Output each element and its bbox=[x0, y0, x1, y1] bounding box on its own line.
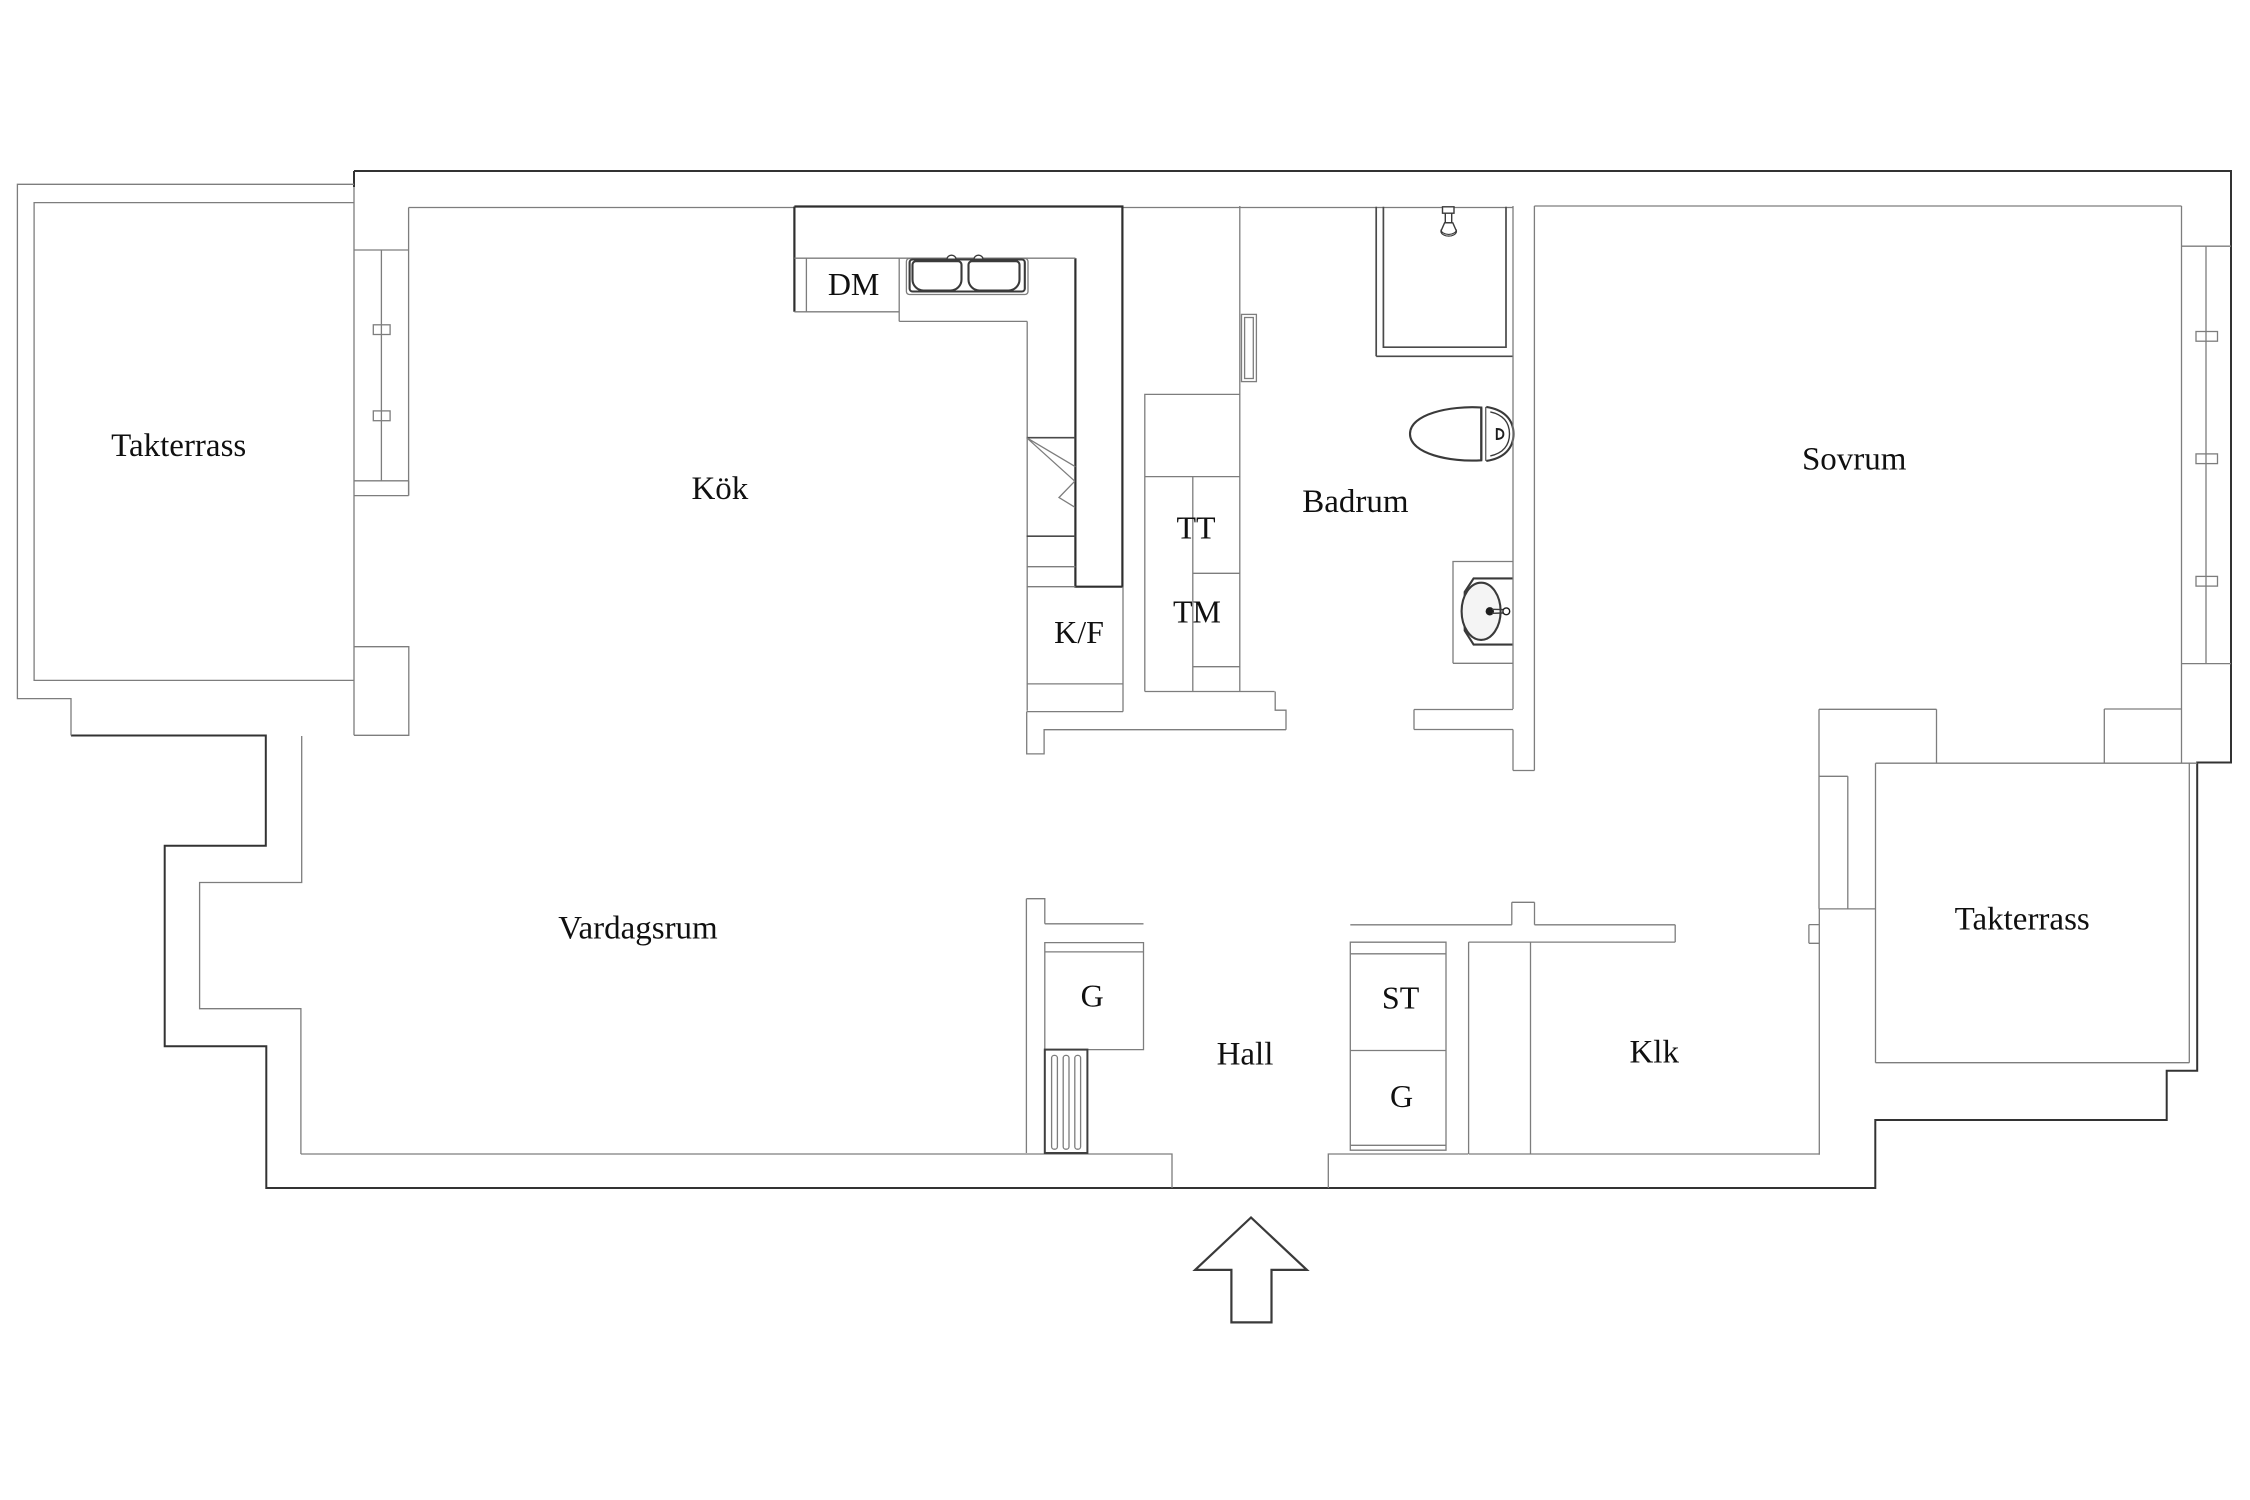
svg-text:Vardagsrum: Vardagsrum bbox=[558, 910, 718, 946]
svg-text:DM: DM bbox=[828, 266, 880, 302]
svg-text:Kök: Kök bbox=[691, 471, 748, 507]
svg-text:G: G bbox=[1081, 978, 1104, 1014]
svg-text:Sovrum: Sovrum bbox=[1802, 442, 1907, 478]
svg-text:TM: TM bbox=[1173, 594, 1221, 630]
svg-text:K/F: K/F bbox=[1054, 614, 1104, 650]
svg-text:G: G bbox=[1390, 1078, 1413, 1114]
svg-text:Klk: Klk bbox=[1629, 1035, 1679, 1071]
svg-text:Takterrass: Takterrass bbox=[1955, 902, 2090, 938]
svg-text:ST: ST bbox=[1382, 980, 1420, 1016]
svg-text:TT: TT bbox=[1176, 510, 1216, 546]
svg-text:Hall: Hall bbox=[1217, 1037, 1274, 1073]
svg-text:Takterrass: Takterrass bbox=[111, 428, 246, 464]
svg-text:Badrum: Badrum bbox=[1302, 484, 1409, 520]
